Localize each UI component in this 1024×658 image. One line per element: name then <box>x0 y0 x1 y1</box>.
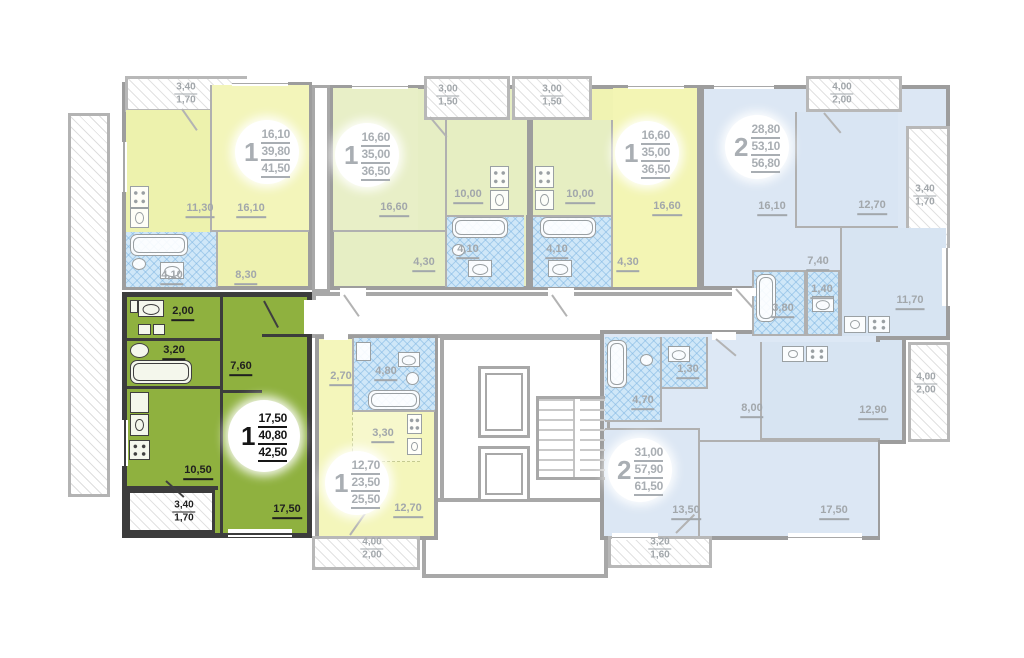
a1-rooms-count: 1 <box>244 139 258 165</box>
a3-living-area: 16,60 <box>641 128 670 145</box>
kitchen-sink-icon <box>130 414 149 436</box>
a4-total-area: 56,80 <box>751 156 780 173</box>
a7-rooms-count: 2 <box>617 457 631 483</box>
a1-balcony-label: 3,401,70 <box>174 82 197 107</box>
entry-door-gap <box>304 300 318 334</box>
a1-room-label: 16,10 <box>236 202 266 218</box>
a4-room2-label: 12,70 <box>857 199 887 215</box>
bathtub-icon <box>452 217 508 238</box>
sel-floor-area: 40,80 <box>258 428 287 445</box>
toilet-icon <box>138 300 164 317</box>
a3-rooms-count: 1 <box>624 140 638 166</box>
a4-balcony-right-label: 3,401,70 <box>913 184 936 209</box>
stove-icon <box>129 440 150 460</box>
a7-living-area: 31,00 <box>634 445 663 462</box>
a1-total-area: 41,50 <box>261 161 290 178</box>
a7-wc-label: 1,30 <box>676 363 699 379</box>
sink-icon <box>406 372 419 385</box>
window <box>352 82 408 89</box>
stove-icon <box>490 166 509 188</box>
a7-bath-label: 4,70 <box>631 394 654 410</box>
a2-total-area: 36,50 <box>361 164 390 181</box>
a7-balcony-bottom-label: 3,201,60 <box>648 537 671 562</box>
a4-balcony-top-label: 4,002,00 <box>830 82 853 107</box>
bathtub-icon <box>130 234 188 256</box>
sel-wall <box>127 338 223 341</box>
a4-rooms-count: 2 <box>734 134 748 160</box>
a2-bath-label: 4,10 <box>456 243 479 259</box>
a7-room2-zone <box>700 440 878 536</box>
window <box>714 82 774 89</box>
a3-kitchen-label: 10,00 <box>565 188 595 204</box>
sel-wc-label: 2,00 <box>171 305 194 321</box>
a7-room2-label: 17,50 <box>819 504 849 520</box>
a1-bath-label: 4,10 <box>160 269 183 285</box>
window <box>628 82 684 89</box>
a1-hall-label: 8,30 <box>234 269 257 285</box>
apartment-a7-ext[interactable] <box>876 336 906 444</box>
a3-floor-area: 35,00 <box>641 145 670 162</box>
door-gap <box>324 332 348 340</box>
kitchen-sink-icon <box>782 346 804 362</box>
a7-floor-area: 57,90 <box>634 462 663 479</box>
window <box>788 533 862 540</box>
stove-icon <box>868 316 890 333</box>
sel-wall <box>127 386 223 389</box>
side-gallery-hatch <box>68 113 110 497</box>
stove-icon <box>407 414 422 434</box>
a4-bath-label: 3,80 <box>771 302 794 318</box>
washer-icon <box>356 342 371 361</box>
sel-badge[interactable]: 1 17,5040,8042,50 <box>228 400 300 472</box>
a4-balcony-top <box>806 76 902 112</box>
bathtub-icon <box>130 360 192 384</box>
toilet-icon <box>468 260 492 277</box>
window <box>232 79 288 86</box>
sink-icon <box>132 258 146 270</box>
st-balcony-label: 4,002,00 <box>360 537 383 562</box>
fridge-icon <box>130 392 149 413</box>
a3-room-label: 16,60 <box>652 200 682 216</box>
a2-badge[interactable]: 1 16,6035,0036,50 <box>335 123 399 187</box>
a7-kitchen-label: 12,90 <box>858 404 888 420</box>
a4-room1-label: 16,10 <box>757 200 787 216</box>
sel-room-label: 17,50 <box>272 503 302 519</box>
sel-total-area: 42,50 <box>258 445 287 462</box>
sel-wall <box>220 297 223 533</box>
a3-badge[interactable]: 1 16,6035,0036,50 <box>615 121 679 185</box>
window <box>120 420 128 466</box>
a2-floor-area: 35,00 <box>361 147 390 164</box>
st-rooms-count: 1 <box>334 470 348 496</box>
sel-wall <box>223 390 262 393</box>
a1-floor-area: 39,80 <box>261 144 290 161</box>
window <box>942 248 950 306</box>
window <box>119 142 127 192</box>
kitchen-sink-icon <box>490 190 509 210</box>
st-hall-label: 2,70 <box>329 370 352 386</box>
sink-icon <box>130 343 149 358</box>
sink-icon <box>640 354 653 366</box>
sel-wall <box>262 334 307 337</box>
a2-hall-label: 4,30 <box>412 256 435 272</box>
st-total-area: 25,50 <box>351 492 380 509</box>
sel-kitchen-label: 10,50 <box>183 464 213 480</box>
kitchen-sink-icon <box>407 438 422 455</box>
a2-rooms-count: 1 <box>344 142 358 168</box>
sel-living-area: 17,50 <box>258 411 287 428</box>
a3-bath-label: 4,10 <box>545 243 568 259</box>
toilet-icon <box>668 346 690 362</box>
stove-icon <box>130 186 149 208</box>
a4-kitchen-label: 11,70 <box>896 294 925 310</box>
a7-hall-label: 8,00 <box>740 402 763 418</box>
a7-total-area: 61,50 <box>634 479 663 496</box>
toilet-icon <box>548 260 572 277</box>
kitchen-sink-icon <box>535 190 554 210</box>
bathtub-icon <box>540 217 596 238</box>
a3-total-area: 36,50 <box>641 162 670 179</box>
cabinet-icon <box>153 324 165 335</box>
sel-balcony <box>127 490 215 533</box>
sel-bath-label: 3,20 <box>162 344 185 360</box>
bathtub-icon <box>368 390 420 410</box>
kitchen-sink-icon <box>844 316 866 333</box>
st-living-area: 12,70 <box>351 458 380 475</box>
a1-living-area: 16,10 <box>261 127 290 144</box>
cabinet-icon <box>138 324 151 335</box>
a4-badge[interactable]: 2 28,8053,1056,80 <box>725 115 789 179</box>
st-room-label: 12,70 <box>393 502 423 518</box>
a2-room-label: 16,60 <box>379 201 409 217</box>
st-bath-label: 4,80 <box>374 365 397 381</box>
bathtub-icon <box>607 340 627 388</box>
st-floor-area: 23,50 <box>351 475 380 492</box>
kitchen-sink-icon <box>130 208 149 228</box>
a4-wc-label: 1,40 <box>810 283 833 299</box>
a1-badge[interactable]: 1 16,1039,8041,50 <box>235 120 299 184</box>
toilet-icon <box>398 352 420 367</box>
a7-badge[interactable]: 2 31,0057,9061,50 <box>608 438 672 502</box>
sel-hall-label: 7,60 <box>229 360 252 376</box>
a4-hall-label: 7,40 <box>806 255 829 271</box>
st-badge[interactable]: 1 12,7023,5025,50 <box>325 451 389 515</box>
a7-balcony-right-label: 4,002,00 <box>914 372 937 397</box>
toilet-tank-icon <box>130 300 138 313</box>
elevator-shaft-1 <box>478 366 530 438</box>
st-niche-label: 3,30 <box>371 427 394 443</box>
floor-plan: 3,401,70 11,30 16,10 4,10 8,30 1 16,1039… <box>0 0 1024 658</box>
stove-icon <box>806 346 828 362</box>
staircase <box>536 396 610 480</box>
section-gap <box>312 85 330 292</box>
a2-kitchen-label: 10,00 <box>453 188 483 204</box>
elevator-shaft-2 <box>478 446 530 502</box>
sel-rooms-count: 1 <box>241 423 255 449</box>
a4-floor-area: 53,10 <box>751 139 780 156</box>
a7-room1-label: 13,50 <box>671 504 701 520</box>
entrance-vestibule <box>422 498 608 578</box>
a3-hall-label: 4,30 <box>616 256 639 272</box>
a3-balcony-label: 3,001,50 <box>540 84 563 109</box>
sel-balcony-label: 3,401,70 <box>172 500 195 525</box>
stove-icon <box>535 166 554 188</box>
window <box>228 529 292 537</box>
a2-balcony-label: 3,001,50 <box>436 84 459 109</box>
a4-living-area: 28,80 <box>751 122 780 139</box>
a2-living-area: 16,60 <box>361 130 390 147</box>
a1-kitchen-label: 11,30 <box>186 202 215 218</box>
